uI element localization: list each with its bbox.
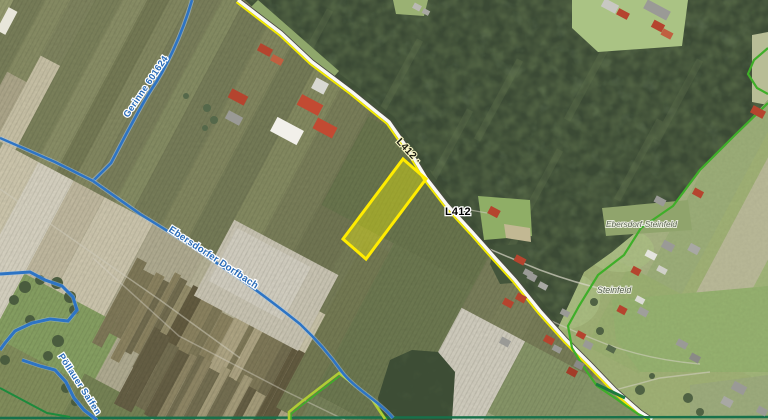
svg-text:Ebersdorf-Steinfeld: Ebersdorf-Steinfeld [606,219,677,229]
svg-text:L412: L412 [445,206,471,218]
svg-text:Steinfeld: Steinfeld [597,285,632,295]
